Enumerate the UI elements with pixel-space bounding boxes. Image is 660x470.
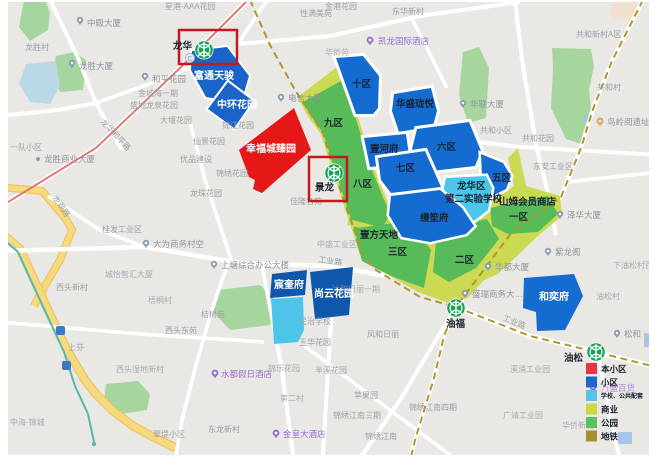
svg-text:大为商务村空: 大为商务村空 [153, 239, 204, 249]
svg-text:大堰花园: 大堰花园 [160, 115, 192, 125]
svg-text:西头湿地新村: 西头湿地新村 [116, 364, 164, 374]
svg-text:C: C [188, 56, 193, 63]
svg-text:本小区: 本小区 [601, 364, 627, 374]
svg-text:城怡智汇大厦: 城怡智汇大厦 [105, 269, 153, 279]
svg-text:民治学校: 民治学校 [299, 316, 331, 326]
svg-text:桔树苑: 桔树苑 [201, 309, 225, 319]
svg-text:华都大厦: 华都大厦 [495, 262, 530, 272]
svg-text:西头东苑: 西头东苑 [165, 325, 197, 335]
svg-text:和平花园: 和平花园 [152, 74, 186, 84]
svg-text:锦绣江南四期: 锦绣江南四期 [409, 402, 457, 412]
svg-text:中殿大厦: 中殿大厦 [87, 18, 122, 28]
svg-text:和奕府: 和奕府 [538, 290, 569, 303]
svg-text:优品建设: 优品建设 [180, 154, 212, 164]
svg-text:锦绣花园: 锦绣花园 [216, 168, 248, 178]
svg-text:景龙: 景龙 [314, 182, 335, 194]
svg-text:油松: 油松 [564, 352, 584, 364]
svg-text:半溪花园: 半溪花园 [315, 365, 347, 375]
svg-text:翠堤小区: 翠堤小区 [153, 429, 185, 439]
svg-text:华盛珑悦: 华盛珑悦 [396, 98, 435, 110]
svg-text:公园: 公园 [601, 418, 618, 428]
svg-text:上芬: 上芬 [68, 342, 84, 352]
svg-text:锦绣江南三期: 锦绣江南三期 [333, 410, 381, 420]
svg-text:共和村: 共和村 [597, 82, 621, 92]
svg-text:凤和日丽: 凤和日丽 [367, 330, 399, 339]
svg-text:小区: 小区 [600, 378, 619, 388]
svg-text:幸福城臻园: 幸福城臻园 [246, 142, 296, 155]
svg-text:第二实验学校: 第二实验学校 [445, 193, 503, 205]
svg-text:龙胜大厦: 龙胜大厦 [79, 61, 114, 71]
svg-text:尚云花园: 尚云花园 [314, 287, 354, 300]
svg-text:龙华: 龙华 [172, 40, 193, 52]
svg-text:电信大厦: 电信大厦 [288, 93, 323, 103]
svg-text:缦笙府: 缦笙府 [420, 212, 449, 224]
svg-text:上塘综合办公大楼: 上塘综合办公大楼 [221, 260, 290, 270]
svg-text:龙胜村: 龙胜村 [25, 42, 49, 52]
svg-text:八区: 八区 [352, 179, 373, 190]
svg-text:泽华大厦: 泽华大厦 [567, 210, 602, 220]
svg-text:油松村: 油松村 [596, 291, 620, 301]
svg-text:西头新村: 西头新村 [56, 282, 88, 292]
svg-text:紫龙阁: 紫龙阁 [555, 247, 581, 257]
svg-text:宸奎府: 宸奎府 [273, 278, 304, 291]
svg-text:仙景花园: 仙景花园 [193, 136, 225, 146]
svg-text:三区: 三区 [388, 247, 408, 258]
svg-text:锦绣江南: 锦绣江南 [365, 431, 397, 441]
svg-text:锦乐花园: 锦乐花园 [268, 363, 300, 373]
svg-text:中盛工业区: 中盛工业区 [317, 239, 357, 249]
svg-text:六区: 六区 [437, 141, 457, 153]
svg-text:桂发工业区: 桂发工业区 [102, 224, 142, 234]
svg-text:十区: 十区 [352, 78, 372, 90]
svg-text:中海·锦城: 中海·锦城 [10, 417, 45, 427]
svg-text:玉华花园: 玉华花园 [299, 337, 331, 347]
svg-text:溪涌工业园: 溪涌工业园 [510, 364, 550, 374]
svg-text:华侨苑: 华侨苑 [325, 47, 349, 57]
svg-text:一队小区: 一队小区 [10, 142, 42, 152]
svg-text:广靖工业园: 广靖工业园 [503, 410, 543, 420]
svg-text:东安工业区: 东安工业区 [533, 161, 573, 171]
svg-text:地铁: 地铁 [601, 432, 619, 442]
svg-text:水都假日酒店: 水都假日酒店 [221, 369, 273, 379]
svg-text:龙珠花园: 龙珠花园 [190, 188, 222, 198]
svg-text:七区: 七区 [396, 162, 416, 174]
svg-text:金皇大酒店: 金皇大酒店 [283, 429, 326, 439]
svg-text:壹方天地: 壹方天地 [360, 229, 399, 241]
svg-text:共和小区: 共和小区 [480, 126, 512, 135]
svg-text:东华新村: 东华新村 [392, 6, 424, 16]
svg-text:东龙新村: 东龙新村 [208, 424, 240, 434]
svg-text:一区: 一区 [509, 212, 529, 223]
svg-text:五区: 五区 [492, 173, 512, 184]
svg-text:龙华区: 龙华区 [456, 180, 486, 192]
svg-text:油福: 油福 [446, 318, 466, 330]
svg-text:学校、公共配套: 学校、公共配套 [601, 392, 643, 400]
svg-text:松和: 松和 [624, 329, 641, 339]
svg-text:盛地龙泉花园: 盛地龙泉花园 [130, 100, 178, 110]
svg-text:共和花园: 共和花园 [522, 133, 554, 143]
svg-text:共和新村A区: 共和新村A区 [576, 29, 621, 39]
svg-text:富通天骏: 富通天骏 [194, 69, 234, 82]
svg-text:山姆会员商店: 山姆会员商店 [499, 196, 557, 208]
svg-text:星港-AAA花园: 星港-AAA花园 [165, 1, 216, 11]
svg-text:盛瑞商务大…: 盛瑞商务大… [472, 289, 523, 299]
svg-text:第二村: 第二村 [280, 393, 304, 403]
svg-text:九区: 九区 [323, 117, 344, 129]
svg-text:梧桐村: 梧桐村 [148, 295, 172, 305]
svg-text:苹果园: 苹果园 [354, 390, 378, 400]
svg-text:金城海一期: 金城海一期 [138, 88, 178, 98]
svg-text:二区: 二区 [455, 255, 475, 266]
svg-text:壹河府: 壹河府 [370, 143, 399, 155]
svg-text:性满美苑: 性满美苑 [300, 8, 332, 18]
svg-text:凯龙国际酒店: 凯龙国际酒店 [378, 36, 430, 46]
svg-text:商业: 商业 [601, 405, 619, 415]
svg-text:华联大厦: 华联大厦 [470, 99, 505, 109]
svg-text:中环花园: 中环花园 [217, 98, 257, 111]
svg-text:锦江花园: 锦江花园 [222, 120, 254, 130]
svg-text:龙胜商业大厦: 龙胜商业大厦 [44, 154, 96, 164]
